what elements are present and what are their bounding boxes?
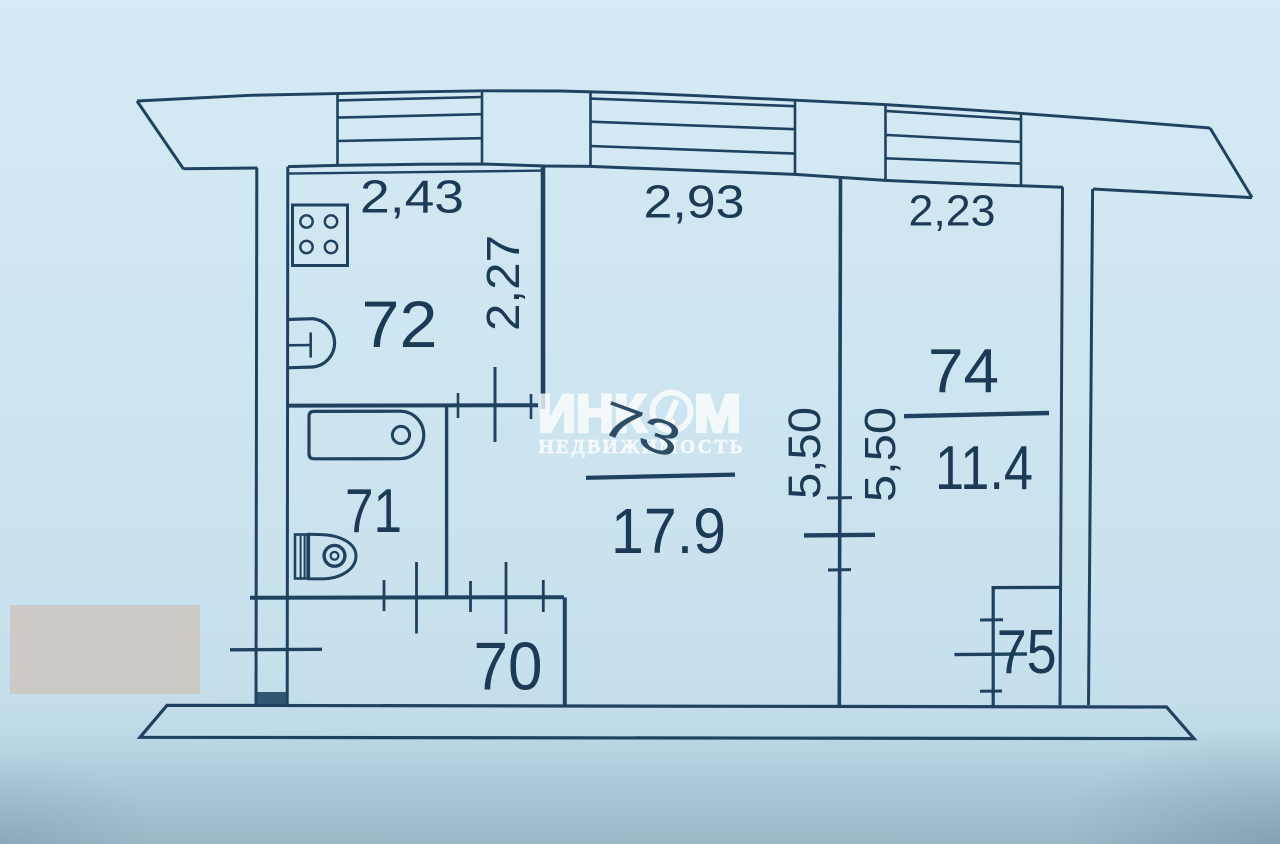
svg-text:2,23: 2,23	[909, 186, 996, 235]
svg-text:2,93: 2,93	[644, 176, 745, 228]
svg-text:75: 75	[997, 618, 1057, 687]
svg-text:70: 70	[474, 629, 543, 705]
svg-text:2,43: 2,43	[360, 171, 464, 223]
svg-text:74: 74	[928, 337, 999, 406]
svg-text:5,50: 5,50	[779, 407, 830, 499]
svg-text:2,27: 2,27	[477, 235, 529, 331]
svg-text:72: 72	[362, 287, 438, 361]
svg-text:М: М	[694, 385, 741, 444]
svg-text:17.9: 17.9	[611, 495, 726, 567]
svg-text:71: 71	[345, 477, 402, 546]
svg-text:11.4: 11.4	[935, 434, 1033, 503]
svg-text:5,50: 5,50	[856, 407, 905, 502]
